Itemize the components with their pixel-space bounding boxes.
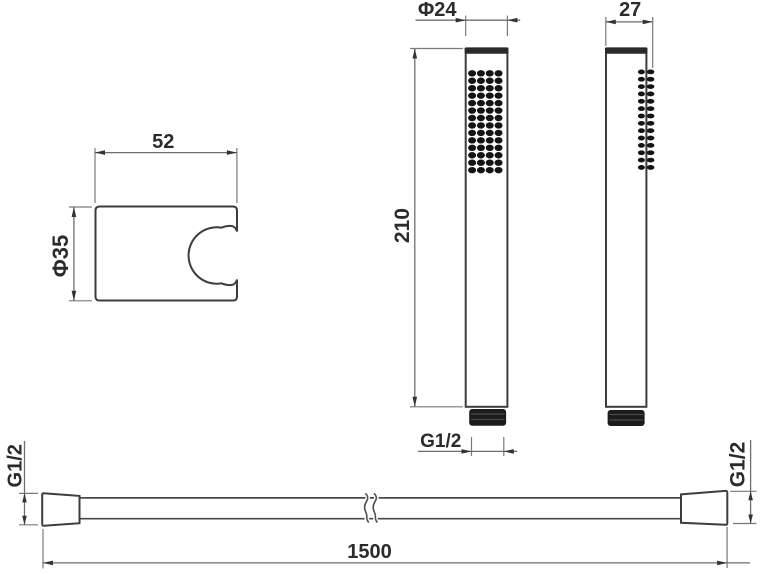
svg-text:210: 210 — [391, 208, 414, 243]
svg-text:27: 27 — [619, 0, 641, 21]
svg-text:Φ24: Φ24 — [418, 0, 458, 21]
svg-text:1500: 1500 — [347, 541, 392, 563]
svg-text:G1/2: G1/2 — [4, 444, 26, 487]
svg-text:52: 52 — [152, 131, 174, 153]
svg-text:G1/2: G1/2 — [727, 442, 750, 488]
svg-text:Φ35: Φ35 — [48, 235, 73, 278]
svg-text:G1/2: G1/2 — [420, 431, 461, 452]
